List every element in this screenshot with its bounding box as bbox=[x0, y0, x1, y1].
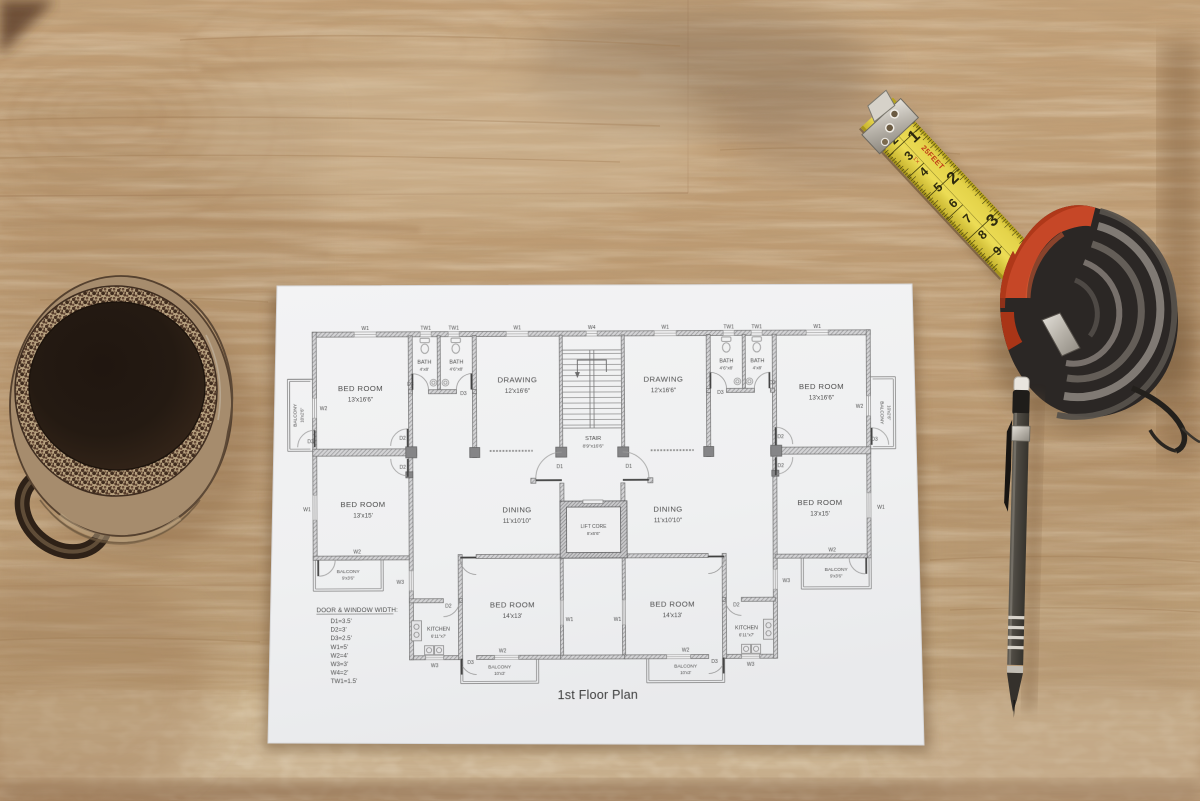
svg-text:W1: W1 bbox=[661, 325, 669, 331]
svg-text:8'9"x16'6": 8'9"x16'6" bbox=[583, 443, 604, 449]
svg-text:W2: W2 bbox=[856, 404, 864, 410]
svg-text:BED ROOM: BED ROOM bbox=[490, 600, 535, 609]
svg-text:13'x15': 13'x15' bbox=[353, 512, 373, 519]
svg-text:10'x2'6": 10'x2'6" bbox=[887, 405, 892, 420]
svg-text:DOOR & WINDOW WIDTH:: DOOR & WINDOW WIDTH: bbox=[316, 607, 398, 614]
svg-text:BATH: BATH bbox=[417, 360, 431, 366]
svg-text:DINING: DINING bbox=[653, 505, 682, 514]
svg-text:STAIR: STAIR bbox=[585, 436, 601, 442]
svg-text:D2=3': D2=3' bbox=[330, 627, 346, 634]
svg-text:D2: D2 bbox=[399, 436, 406, 442]
svg-text:W2: W2 bbox=[682, 648, 690, 654]
svg-text:BED ROOM: BED ROOM bbox=[799, 382, 844, 391]
svg-text:BATH: BATH bbox=[750, 358, 764, 364]
svg-text:13'x15': 13'x15' bbox=[810, 510, 830, 517]
svg-text:D3: D3 bbox=[460, 391, 467, 397]
svg-text:W1: W1 bbox=[813, 324, 821, 330]
svg-text:BATH: BATH bbox=[719, 358, 733, 364]
svg-text:D3: D3 bbox=[467, 660, 474, 666]
svg-text:W4: W4 bbox=[588, 325, 596, 331]
svg-text:BED ROOM: BED ROOM bbox=[797, 498, 842, 507]
svg-text:TW1: TW1 bbox=[751, 324, 762, 330]
svg-text:W3: W3 bbox=[431, 663, 439, 669]
svg-text:4'6"x8': 4'6"x8' bbox=[720, 365, 734, 370]
svg-text:W1: W1 bbox=[361, 326, 369, 332]
svg-text:DRAWING: DRAWING bbox=[498, 375, 538, 384]
svg-text:D3=2.5': D3=2.5' bbox=[331, 635, 352, 642]
svg-text:D1=3.5': D1=3.5' bbox=[330, 618, 351, 625]
svg-text:4'x8': 4'x8' bbox=[753, 365, 762, 370]
svg-text:D3: D3 bbox=[871, 437, 878, 443]
svg-text:11'x10'10": 11'x10'10" bbox=[654, 517, 682, 524]
svg-text:BED ROOM: BED ROOM bbox=[650, 600, 695, 609]
svg-text:1st Floor Plan: 1st Floor Plan bbox=[558, 688, 639, 702]
svg-text:BED ROOM: BED ROOM bbox=[338, 384, 383, 393]
svg-text:W2: W2 bbox=[828, 547, 836, 553]
svg-text:9'x3'6": 9'x3'6" bbox=[342, 576, 355, 581]
svg-text:W1: W1 bbox=[513, 325, 521, 331]
svg-text:10'x3': 10'x3' bbox=[494, 671, 505, 676]
svg-text:14'x13': 14'x13' bbox=[503, 613, 523, 620]
svg-text:W1: W1 bbox=[303, 507, 311, 513]
svg-text:W2: W2 bbox=[320, 406, 328, 412]
svg-text:BALCONY: BALCONY bbox=[488, 664, 512, 670]
svg-text:D2: D2 bbox=[445, 604, 452, 610]
svg-text:DINING: DINING bbox=[502, 505, 531, 514]
svg-text:13'x16'6": 13'x16'6" bbox=[348, 396, 373, 403]
svg-text:12'x16'6": 12'x16'6" bbox=[651, 387, 676, 394]
svg-text:8'x6'6": 8'x6'6" bbox=[587, 531, 601, 536]
svg-text:D2: D2 bbox=[400, 465, 407, 471]
svg-text:D2: D2 bbox=[778, 463, 785, 469]
svg-text:W1: W1 bbox=[566, 617, 574, 623]
svg-text:TW1=1.5': TW1=1.5' bbox=[331, 678, 357, 685]
svg-text:W4=2': W4=2' bbox=[331, 670, 349, 677]
svg-text:D3: D3 bbox=[717, 390, 724, 396]
svg-text:W3=3': W3=3' bbox=[331, 661, 349, 668]
svg-text:W2: W2 bbox=[499, 648, 507, 654]
svg-text:10'x2'6": 10'x2'6" bbox=[300, 407, 305, 422]
svg-text:TW1: TW1 bbox=[448, 326, 459, 332]
svg-text:9'x3'6": 9'x3'6" bbox=[830, 573, 843, 578]
svg-text:4'x8': 4'x8' bbox=[420, 367, 429, 372]
svg-text:D2: D2 bbox=[733, 602, 740, 608]
svg-text:W1: W1 bbox=[877, 505, 885, 511]
svg-text:D3: D3 bbox=[307, 439, 314, 445]
svg-text:13'x16'6": 13'x16'6" bbox=[809, 394, 834, 401]
svg-text:BALCONY: BALCONY bbox=[337, 569, 361, 575]
svg-text:11'x10'10": 11'x10'10" bbox=[503, 518, 531, 525]
svg-text:BED ROOM: BED ROOM bbox=[340, 500, 385, 509]
svg-text:W3: W3 bbox=[747, 662, 755, 668]
svg-text:D3: D3 bbox=[407, 382, 414, 388]
svg-text:BALCONY: BALCONY bbox=[674, 664, 698, 670]
svg-text:W2: W2 bbox=[353, 550, 361, 556]
svg-text:6'11"x7': 6'11"x7' bbox=[739, 632, 754, 637]
svg-text:W1=5': W1=5' bbox=[331, 644, 349, 651]
svg-text:14'x13': 14'x13' bbox=[663, 612, 683, 619]
svg-text:W3: W3 bbox=[397, 580, 405, 586]
svg-text:D2: D2 bbox=[777, 434, 784, 440]
svg-text:BALCONY: BALCONY bbox=[879, 401, 885, 425]
svg-text:BALCONY: BALCONY bbox=[825, 567, 849, 573]
svg-text:BALCONY: BALCONY bbox=[293, 403, 299, 427]
svg-text:LIFT CORE: LIFT CORE bbox=[581, 524, 608, 530]
svg-text:W3: W3 bbox=[783, 578, 791, 584]
svg-text:D3: D3 bbox=[769, 380, 776, 386]
svg-text:12'x16'6": 12'x16'6" bbox=[505, 388, 530, 395]
svg-text:DRAWING: DRAWING bbox=[644, 375, 684, 384]
svg-text:KITCHEN: KITCHEN bbox=[427, 627, 450, 633]
svg-text:TW1: TW1 bbox=[723, 324, 734, 330]
svg-text:4'6"x8': 4'6"x8' bbox=[450, 367, 464, 372]
svg-text:10'x3': 10'x3' bbox=[680, 670, 691, 675]
svg-text:6'11"x7': 6'11"x7' bbox=[431, 634, 446, 639]
svg-text:W2=4': W2=4' bbox=[331, 652, 349, 659]
svg-text:W1: W1 bbox=[614, 617, 622, 623]
svg-text:D1: D1 bbox=[557, 464, 564, 470]
svg-text:KITCHEN: KITCHEN bbox=[735, 625, 758, 631]
svg-text:D3: D3 bbox=[711, 659, 718, 665]
svg-text:TW1: TW1 bbox=[420, 326, 431, 332]
svg-text:D1: D1 bbox=[626, 464, 633, 470]
svg-text:BATH: BATH bbox=[449, 360, 463, 366]
